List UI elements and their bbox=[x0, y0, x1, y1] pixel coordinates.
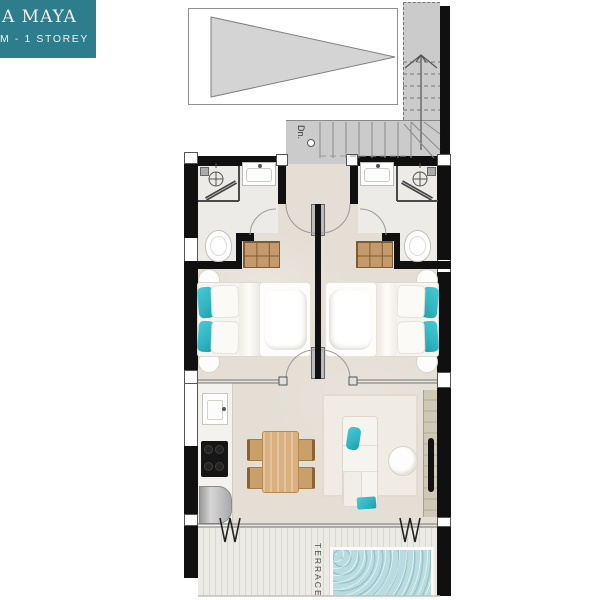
partition-end-cap bbox=[349, 377, 357, 385]
door-arc-bedroom-left-bottom bbox=[286, 350, 315, 379]
terrace-label: TERRACE bbox=[313, 543, 323, 598]
folding-door-icon bbox=[220, 518, 230, 542]
partition-end-cap bbox=[279, 377, 287, 385]
plan-linework bbox=[0, 0, 600, 600]
door-arcs bbox=[250, 204, 386, 379]
door-arc-bedroom-left-top bbox=[286, 204, 315, 233]
floorplan-canvas: A MAYA M - 1 STOREY bbox=[0, 0, 600, 600]
door-arc-bedroom-right-bottom bbox=[321, 350, 350, 379]
folding-door-symbols bbox=[220, 518, 420, 542]
stair-marker-circle bbox=[308, 140, 315, 147]
folding-door-icon bbox=[230, 518, 240, 542]
stair-treads-solid bbox=[320, 122, 411, 158]
stair-down-label: Dn. bbox=[296, 125, 306, 139]
sliding-partition-lines bbox=[198, 380, 437, 383]
stair-up-arrow bbox=[405, 55, 437, 150]
stair-winders bbox=[404, 122, 440, 158]
folding-door-icon bbox=[410, 518, 420, 542]
door-arc-bathroom-left bbox=[250, 209, 276, 235]
door-arc-bedroom-right-top bbox=[321, 204, 350, 233]
shower-head-icons bbox=[209, 163, 427, 186]
door-arc-bathroom-right bbox=[360, 209, 386, 235]
folding-door-icon bbox=[400, 518, 410, 542]
